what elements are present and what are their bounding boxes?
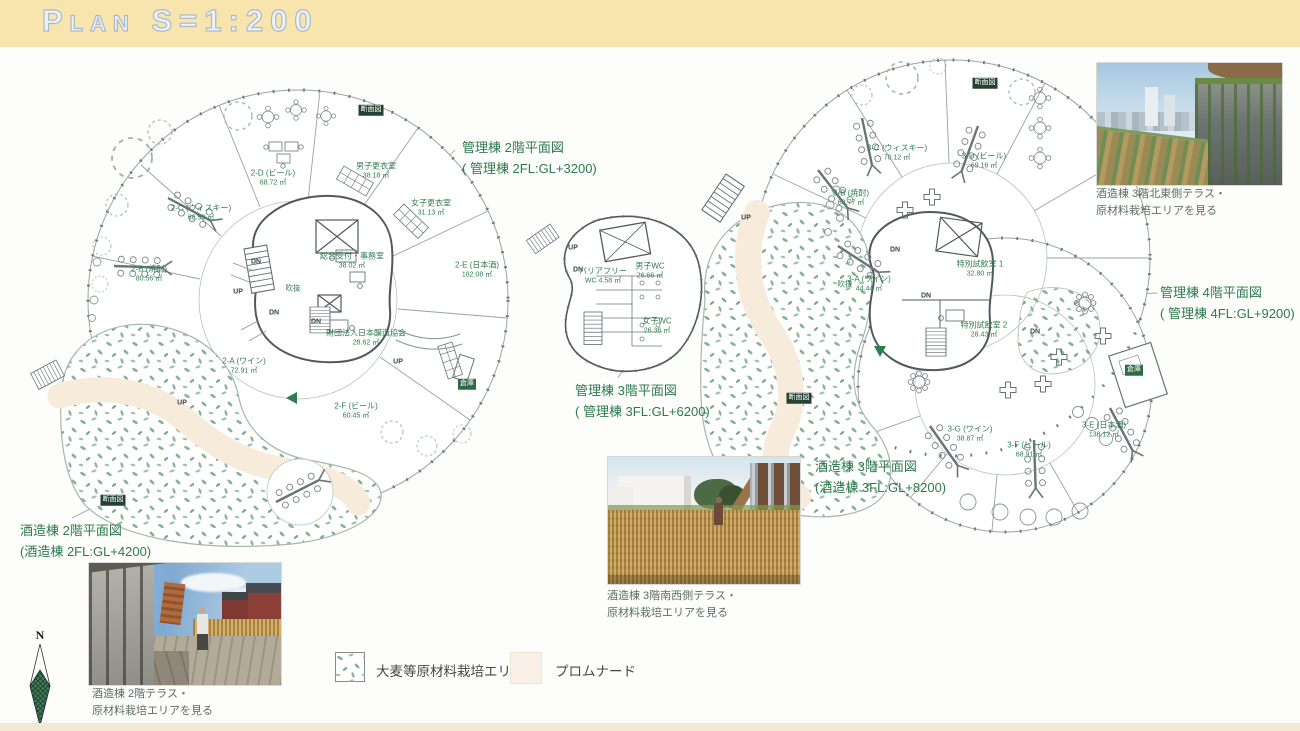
legend-planting-swatch [335,652,365,682]
annotation-line: ( 管理棟 3FL:GL+6200) [575,402,710,423]
annotation-line: ( 管理棟 2FL:GL+3200) [462,159,597,180]
presentation-sheet: Plan S=1:200 [0,0,1300,731]
north-arrow: N [18,626,62,730]
render-person [197,614,208,634]
annotation-shuzo-3f: 酒造棟 3階平面図 (酒造棟 3FL:GL+8200) [815,457,946,499]
annotation-line: 酒造棟 2階平面図 [20,521,151,542]
annotation-kanri-3f: 管理棟 3階平面図 ( 管理棟 3FL:GL+6200) [575,381,710,423]
photo-ne-terrace-render [1096,62,1283,186]
legend-planting-label: 大麦等原材料栽培エリア [376,660,525,680]
caption-line: 酒造棟 3階南西側テラス・ [607,588,737,605]
photo-2f-terrace-render [88,562,282,686]
annotation-line: ( 管理棟 4FL:GL+9200) [1160,304,1295,325]
photo-sw-terrace-render [607,456,801,585]
annotation-line: (酒造棟 3FL:GL+8200) [815,478,946,499]
annotation-line: 管理棟 3階平面図 [575,381,710,402]
sheet-bottom-strip [0,723,1300,731]
render-tower [1145,87,1158,126]
render-barley-field [608,510,800,584]
core-left [253,196,392,362]
render-person [714,503,723,525]
annotation-kanri-4f: 管理棟 4階平面図 ( 管理棟 4FL:GL+9200) [1160,283,1295,325]
caption-line: 酒造棟 2階テラス・ [92,686,213,703]
annotation-line: 管理棟 2階平面図 [462,138,597,159]
caption-line: 原材料栽培エリアを見る [92,703,213,720]
caption-line: 原材料栽培エリアを見る [607,605,737,622]
caption-line: 原材料栽培エリアを見る [1096,203,1226,220]
annotation-line: 酒造棟 3階平面図 [815,457,946,478]
render-wall [89,563,154,685]
legend-promenade-label: プロムナード [555,660,636,680]
north-label: N [36,628,45,642]
annotation-shuzo-2f: 酒造棟 2階平面図 (酒造棟 2FL:GL+4200) [20,521,151,563]
caption-ne-terrace: 酒造棟 3階北東側テラス・ 原材料栽培エリアを見る [1096,186,1226,219]
floor-plan-middle [526,216,701,371]
render-tower [1164,95,1175,127]
annotation-line: 管理棟 4階平面図 [1160,283,1295,304]
render-foreground-shadow [608,575,800,584]
annotation-line: (酒造棟 2FL:GL+4200) [20,542,151,563]
caption-line: 酒造棟 3階北東側テラス・ [1096,186,1226,203]
caption-sw-terrace: 酒造棟 3階南西側テラス・ 原材料栽培エリアを見る [607,588,737,621]
annotation-kanri-2f: 管理棟 2階平面図 ( 管理棟 2FL:GL+3200) [462,138,597,180]
render-building-facade [1195,78,1282,186]
legend-promenade-swatch [510,652,542,684]
caption-2f-terrace: 酒造棟 2階テラス・ 原材料栽培エリアを見る [92,686,213,719]
floor-plan-left [31,90,508,546]
